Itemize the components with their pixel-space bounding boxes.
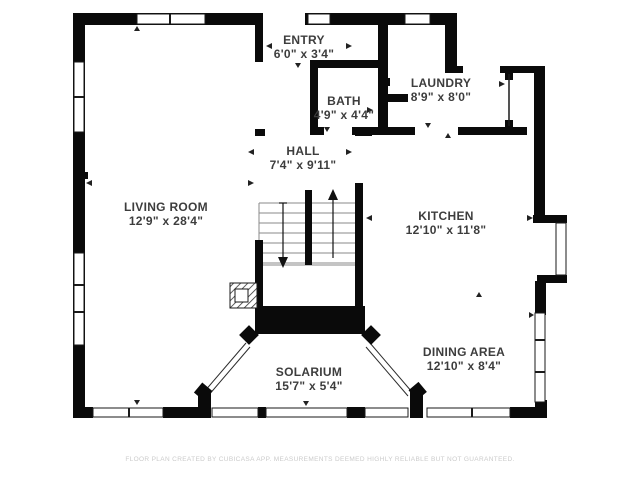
bay-jut-wall: [533, 215, 567, 223]
room-label-kitchen: KITCHEN 12'10" x 11'8": [406, 209, 487, 237]
arrow-hall-right: [346, 149, 352, 155]
entry-right-wall: [445, 13, 457, 73]
left-wall-nub: [84, 172, 88, 179]
kitchen-top-wall-left: [378, 127, 415, 135]
arrow-laundry-right: [499, 81, 505, 87]
stair-mid-wall: [305, 190, 312, 265]
room-dimensions: 12'9" x 28'4": [124, 214, 208, 228]
room-label-hall: HALL 7'4" x 9'11": [270, 144, 337, 172]
room-name: HALL: [270, 144, 337, 158]
arrow-living-left: [86, 180, 92, 186]
room-name: SOLARIUM: [275, 365, 342, 379]
bottom-wall-1: [73, 407, 93, 418]
room-dimensions: 8'9" x 8'0": [411, 90, 471, 104]
room-name: DINING AREA: [423, 345, 505, 359]
disclaimer-text: FLOOR PLAN CREATED BY CUBICASA APP. MEAS…: [0, 456, 640, 463]
room-name: KITCHEN: [406, 209, 487, 223]
window-solarium-2: [266, 408, 347, 417]
floorplan-drawing: [0, 0, 640, 480]
room-name: LIVING ROOM: [124, 200, 208, 214]
kitchen-top-wall-right: [458, 127, 527, 135]
right-wall-mid: [535, 281, 546, 315]
room-dimensions: 4'9" x 4'4": [314, 108, 374, 122]
room-name: LAUNDRY: [411, 76, 471, 90]
entry-laundry-wall: [378, 13, 388, 135]
laundry-stub-wall: [383, 94, 408, 102]
room-label-solarium: SOLARIUM 15'7" x 5'4": [275, 365, 342, 393]
room-dimensions: 12'10" x 11'8": [406, 223, 487, 237]
bottom-wall-3: [258, 407, 266, 418]
window-left-2: [74, 253, 84, 345]
kitchen-stair-wall: [355, 183, 363, 320]
window-bottom-dining: [427, 408, 510, 417]
bath-top-wall: [310, 60, 388, 68]
right-wall-upper: [534, 66, 545, 216]
room-label-bath: BATH 4'9" x 4'4": [314, 94, 374, 122]
room-label-laundry: LAUNDRY 8'9" x 8'0": [411, 76, 471, 104]
hall-stub-left: [255, 129, 265, 136]
room-dimensions: 7'4" x 9'11": [270, 158, 337, 172]
bottom-wall-5: [510, 407, 547, 418]
floorplan-canvas: ENTRY 6'0" x 3'4" BATH 4'9" x 4'4" LAUND…: [0, 0, 640, 480]
hall-stub-right: [355, 129, 372, 136]
living-entry-divider: [255, 13, 263, 62]
top-wall-right: [332, 13, 457, 25]
bottom-wall-4: [347, 407, 365, 418]
window-top-laundry: [405, 14, 430, 24]
room-name: BATH: [314, 94, 374, 108]
entry-lip-wall: [445, 66, 463, 73]
window-top-entry: [308, 14, 330, 24]
arrow-entry-right: [346, 43, 352, 49]
window-right-dining: [535, 313, 545, 402]
window-solarium-3: [365, 408, 408, 417]
door-stop-nub: [383, 78, 390, 86]
arrow-dining-up: [476, 292, 482, 297]
arrow-kitchen-left: [366, 215, 372, 221]
arrow-hall-left: [248, 149, 254, 155]
arrow-dining-window: [529, 312, 534, 318]
room-name: ENTRY: [274, 33, 334, 47]
room-dimensions: 15'7" x 5'4": [275, 379, 342, 393]
room-dimensions: 12'10" x 8'4": [423, 359, 505, 373]
room-label-entry: ENTRY 6'0" x 3'4": [274, 33, 334, 61]
window-solarium-1: [212, 408, 258, 417]
window-bay-kitchen: [556, 223, 566, 275]
arrow-laundry-door-up: [445, 133, 451, 138]
arrow-kitchen-right: [527, 215, 533, 221]
arrow-bath-door: [324, 127, 330, 132]
arrow-living-top: [134, 26, 140, 31]
room-label-living-room: LIVING ROOM 12'9" x 28'4": [124, 200, 208, 228]
arrow-laundry-door-down: [425, 123, 431, 128]
arrow-entry-door: [295, 63, 301, 68]
room-label-dining-area: DINING AREA 12'10" x 8'4": [423, 345, 505, 373]
bath-bottom-wall-left: [310, 127, 324, 135]
arrow-entry-left: [266, 43, 272, 49]
chimney-icon: [230, 283, 257, 308]
arrow-living-bottom: [134, 400, 140, 405]
room-dimensions: 6'0" x 3'4": [274, 47, 334, 61]
hearth-wall: [255, 306, 365, 334]
arrow-solarium-down: [303, 401, 309, 406]
arrow-living-right: [248, 180, 254, 186]
